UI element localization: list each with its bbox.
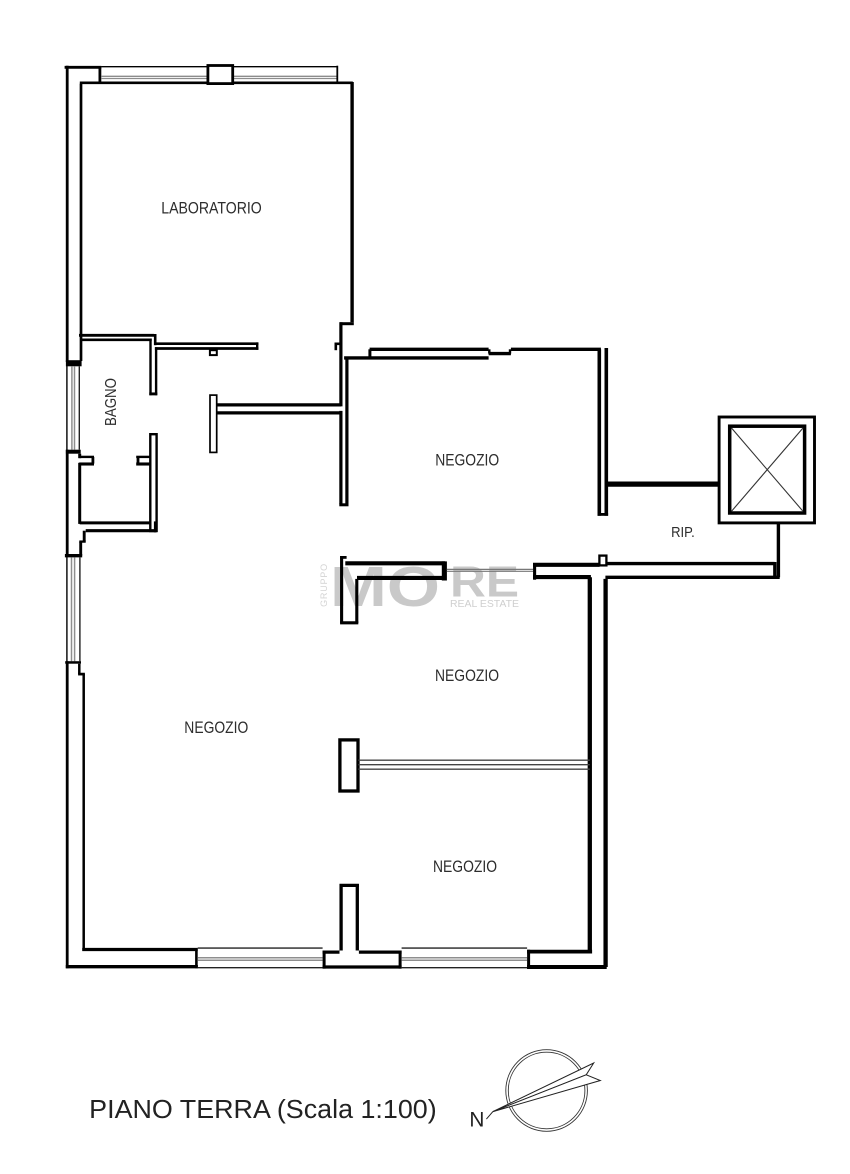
svg-text:NEGOZIO: NEGOZIO — [433, 858, 497, 876]
svg-text:NEGOZIO: NEGOZIO — [184, 719, 248, 737]
svg-text:PIANO TERRA (Scala 1:100): PIANO TERRA (Scala 1:100) — [89, 1096, 437, 1124]
svg-text:RIP.: RIP. — [671, 523, 695, 540]
svg-text:NEGOZIO: NEGOZIO — [435, 452, 499, 470]
svg-text:BAGNO: BAGNO — [103, 378, 120, 426]
svg-text:N: N — [469, 1109, 484, 1132]
svg-text:LABORATORIO: LABORATORIO — [161, 200, 262, 218]
svg-text:REAL ESTATE: REAL ESTATE — [450, 599, 519, 610]
svg-text:GRUPPO: GRUPPO — [319, 563, 329, 607]
svg-text:NEGOZIO: NEGOZIO — [435, 667, 499, 685]
